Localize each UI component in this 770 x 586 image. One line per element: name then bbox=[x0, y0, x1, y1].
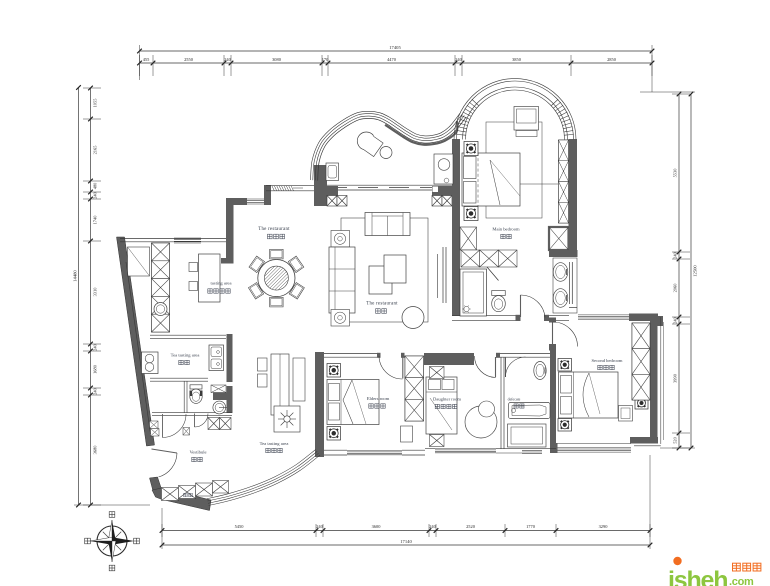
svg-text:tasting area: tasting area bbox=[210, 281, 231, 286]
svg-text:1680: 1680 bbox=[93, 364, 98, 374]
svg-text:Second bedroom: Second bedroom bbox=[591, 358, 622, 363]
svg-text:240: 240 bbox=[93, 387, 98, 394]
svg-text:3310: 3310 bbox=[93, 287, 98, 297]
svg-text:4470: 4470 bbox=[387, 57, 397, 62]
svg-text:455: 455 bbox=[143, 57, 150, 62]
svg-text:12500: 12500 bbox=[693, 265, 698, 277]
svg-text:3600: 3600 bbox=[372, 524, 382, 529]
svg-text:3990: 3990 bbox=[673, 373, 678, 383]
svg-text:240: 240 bbox=[224, 57, 231, 62]
svg-text:3680: 3680 bbox=[93, 445, 98, 455]
svg-text:480: 480 bbox=[93, 182, 98, 189]
svg-text:2060: 2060 bbox=[673, 283, 678, 293]
svg-text:3850: 3850 bbox=[512, 57, 522, 62]
svg-text:170: 170 bbox=[322, 57, 329, 62]
svg-text:Tea tasting area: Tea tasting area bbox=[171, 353, 200, 358]
svg-text:.com: .com bbox=[729, 576, 754, 586]
svg-text:5450: 5450 bbox=[235, 524, 245, 529]
svg-text:1740: 1740 bbox=[93, 215, 98, 225]
svg-text:Daughter room: Daughter room bbox=[433, 397, 461, 402]
svg-text:Tea tasting area: Tea tasting area bbox=[260, 441, 289, 446]
svg-text:The restaurant: The restaurant bbox=[258, 227, 290, 232]
svg-text:Vestibule: Vestibule bbox=[189, 450, 206, 455]
svg-text:17140: 17140 bbox=[400, 539, 412, 544]
svg-text:The restaurant: The restaurant bbox=[366, 302, 398, 307]
svg-text:240: 240 bbox=[673, 251, 678, 258]
svg-text:2850: 2850 bbox=[607, 57, 617, 62]
svg-text:14480: 14480 bbox=[73, 270, 78, 282]
svg-text:1055: 1055 bbox=[93, 98, 98, 108]
svg-text:Main bedroom: Main bedroom bbox=[492, 227, 520, 232]
svg-text:2165: 2165 bbox=[93, 145, 98, 155]
svg-text:17405: 17405 bbox=[389, 45, 401, 50]
svg-text:defecate: defecate bbox=[508, 397, 521, 401]
svg-text:1770: 1770 bbox=[526, 524, 536, 529]
svg-text:jsheh: jsheh bbox=[667, 567, 727, 586]
svg-text:3290: 3290 bbox=[599, 524, 609, 529]
svg-text:2550: 2550 bbox=[184, 57, 194, 62]
svg-text:240: 240 bbox=[93, 191, 98, 198]
svg-text:240: 240 bbox=[93, 343, 98, 350]
svg-text:240: 240 bbox=[429, 524, 436, 529]
svg-text:520: 520 bbox=[673, 436, 678, 443]
svg-text:3080: 3080 bbox=[272, 57, 282, 62]
svg-text:240: 240 bbox=[455, 57, 462, 62]
svg-text:240: 240 bbox=[316, 524, 323, 529]
svg-text:240: 240 bbox=[673, 316, 678, 323]
svg-text:2520: 2520 bbox=[466, 524, 476, 529]
svg-text:5530: 5530 bbox=[673, 168, 678, 178]
svg-text:Elders room: Elders room bbox=[367, 396, 390, 401]
